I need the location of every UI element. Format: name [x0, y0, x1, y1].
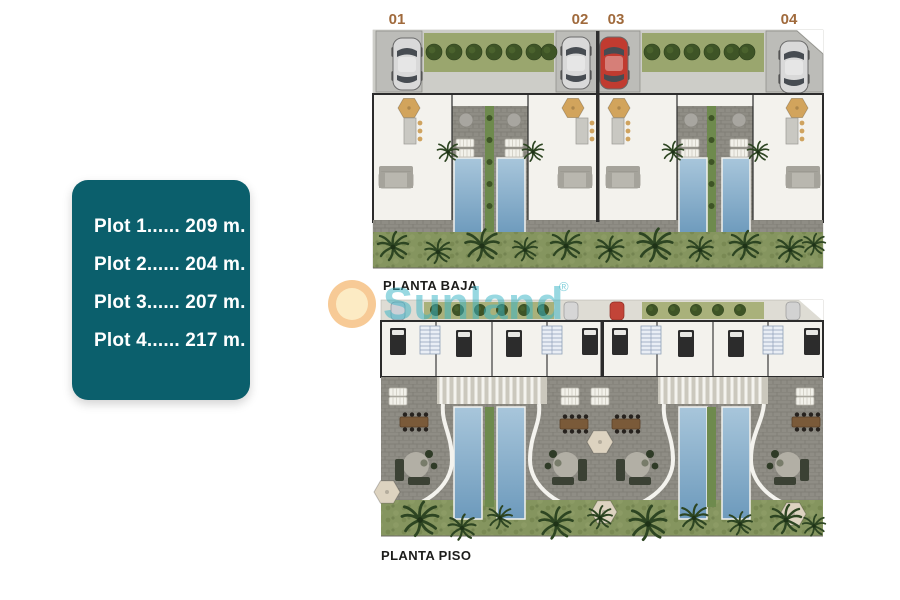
- car-plot-1: [392, 38, 423, 90]
- plot-size-item-4: Plot 4...... 217 m.: [94, 322, 250, 360]
- car-plot-2: [561, 37, 592, 89]
- planta-baja-plan: 01 02 03 04: [373, 11, 825, 293]
- planta-baja-label: PLANTA BAJA: [383, 278, 478, 293]
- car-plot-3: [599, 37, 630, 89]
- unit-label-04: 04: [781, 11, 798, 28]
- unit-label-02: 02: [572, 11, 589, 28]
- planta-piso-plan: PLANTA PISO: [374, 300, 825, 563]
- planta-piso-label: PLANTA PISO: [381, 548, 471, 563]
- unit-label-01: 01: [389, 11, 406, 28]
- plot-size-item-2: Plot 2...... 204 m.: [94, 246, 250, 284]
- car-plot-4: [779, 41, 810, 93]
- unit-label-03: 03: [608, 11, 625, 28]
- plot-size-item-1: Plot 1...... 209 m.: [94, 208, 250, 246]
- plot-sizes-box: Plot 1...... 209 m. Plot 2...... 204 m. …: [72, 180, 250, 400]
- plot-size-item-3: Plot 3...... 207 m.: [94, 284, 250, 322]
- page: 01 02 03 04: [0, 0, 900, 600]
